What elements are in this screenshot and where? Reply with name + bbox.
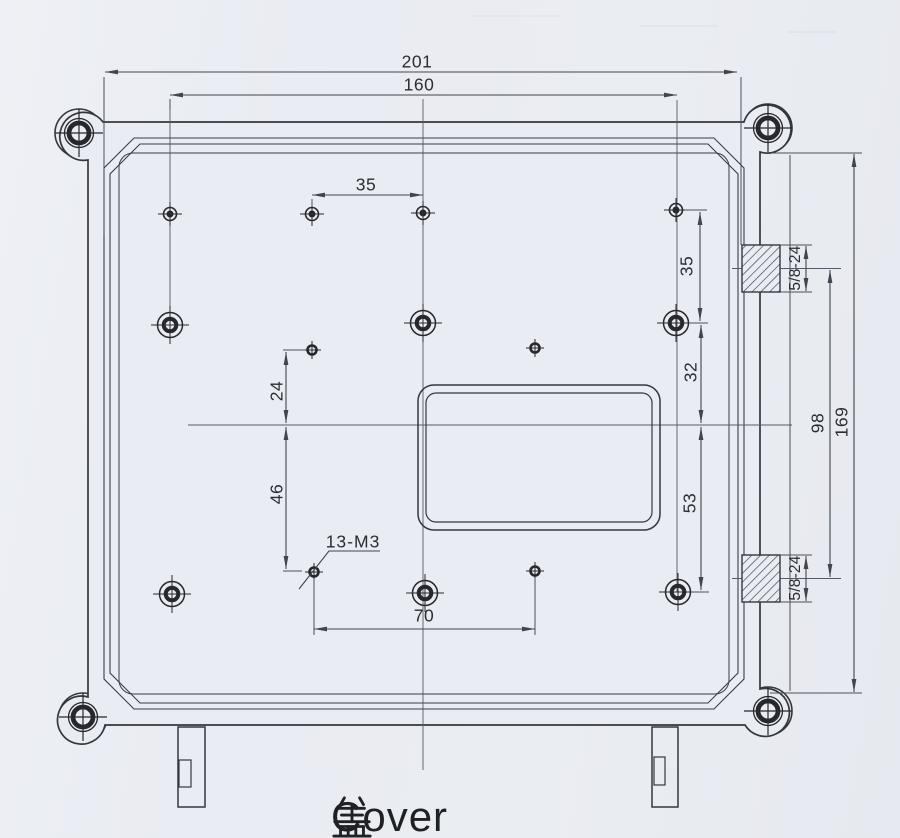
dim-left-lower-label: 46	[267, 484, 288, 504]
dim-right-mid-label: 32	[681, 362, 702, 382]
foot-right-notch	[654, 757, 665, 785]
dim-left-upper-label: 24	[267, 381, 288, 401]
foot-left-notch	[179, 760, 191, 787]
dim-right-lower-label: 53	[680, 493, 701, 513]
dim-bottom-spacing-label: 70	[414, 606, 434, 627]
dim-connector-span-label: 98	[808, 413, 829, 433]
engineering-drawing-sheet: 201 160 35 35 32 53 24 46 70 98 169 5/8-…	[0, 0, 900, 838]
dim-top-spacing-label: 35	[356, 175, 376, 196]
thread-section-bottom	[742, 555, 780, 602]
tapped-holes-callout-label: 13-M3	[326, 532, 381, 553]
thread-spec-bottom-label: 5/8-24	[787, 555, 805, 600]
drawing-title: Cover	[331, 794, 448, 836]
dim-overall-width-label: 201	[402, 52, 433, 73]
thread-spec-top-label: 5/8-24	[787, 245, 805, 290]
dim-hole-span-label: 160	[404, 75, 435, 96]
dim-overall-height-label: 169	[832, 407, 853, 438]
dim-right-upper-label: 35	[677, 256, 698, 276]
cover-drawing	[0, 0, 900, 838]
thread-section-top	[742, 245, 780, 292]
title-en-label: Cover	[331, 796, 448, 838]
